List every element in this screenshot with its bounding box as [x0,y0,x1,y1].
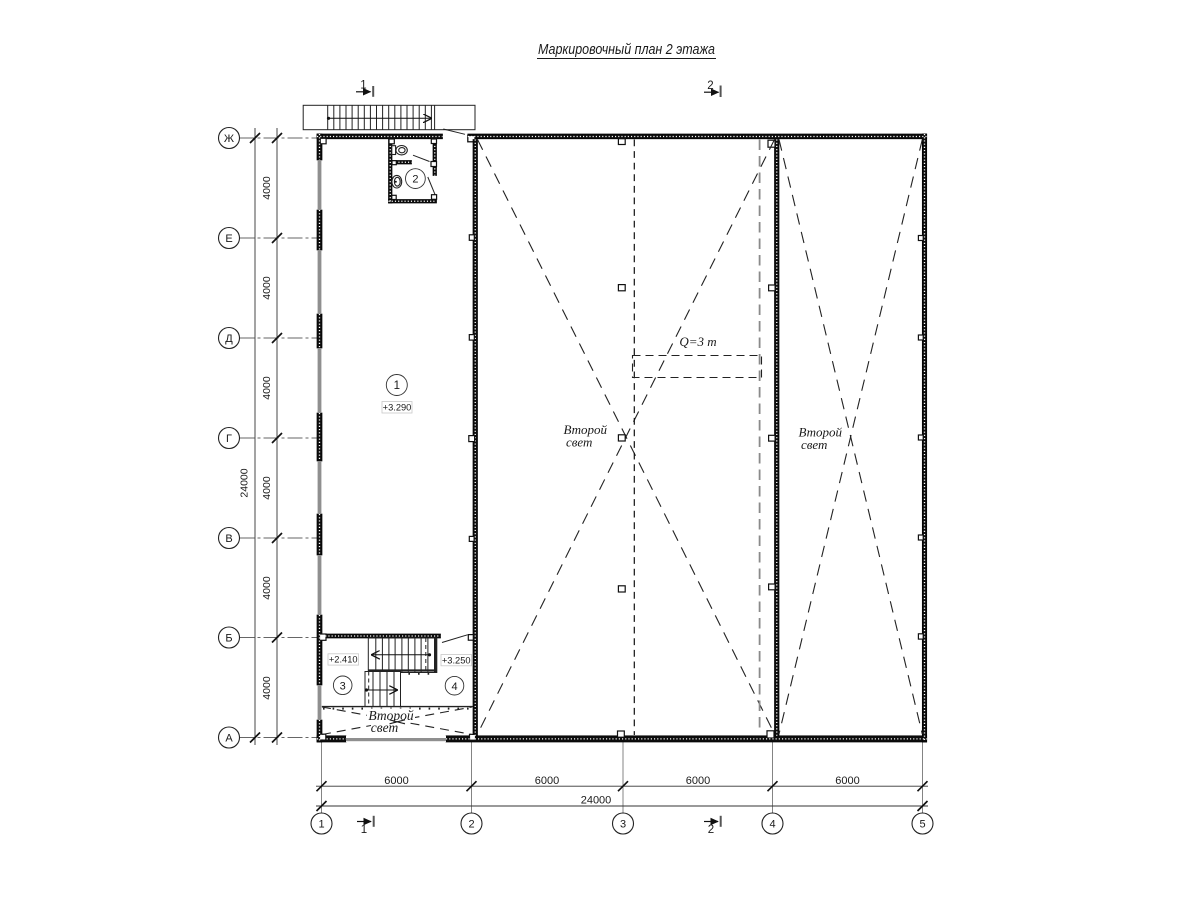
svg-text:2: 2 [707,80,713,92]
svg-text:Q=3 т: Q=3 т [679,334,716,349]
svg-text:3: 3 [620,819,626,831]
svg-text:Г: Г [226,433,232,445]
svg-text:4000: 4000 [261,376,273,400]
svg-text:4: 4 [769,819,775,831]
svg-text:4000: 4000 [261,276,273,300]
svg-text:В: В [225,533,232,545]
svg-text:1: 1 [394,380,400,392]
svg-text:свет: свет [566,435,592,450]
svg-text:Д: Д [225,333,233,345]
svg-text:1: 1 [318,819,324,831]
svg-text:4000: 4000 [261,676,273,700]
svg-text:+3.250: +3.250 [442,655,471,665]
svg-text:2: 2 [708,824,714,836]
svg-text:А: А [225,733,233,745]
svg-text:6000: 6000 [535,775,559,787]
svg-text:Ж: Ж [224,133,234,145]
svg-text:Маркировочный план 2 этажа: Маркировочный план 2 этажа [538,42,715,58]
svg-text:Б: Б [225,633,232,645]
svg-text:6000: 6000 [686,775,710,787]
svg-text:1: 1 [360,80,366,92]
svg-text:2: 2 [412,174,418,186]
svg-text:+2.410: +2.410 [329,655,358,665]
svg-text:Е: Е [225,233,232,245]
svg-text:4000: 4000 [261,476,273,500]
svg-text:24000: 24000 [581,795,612,807]
svg-text:1: 1 [361,824,367,836]
svg-text:4000: 4000 [261,176,273,200]
svg-text:6000: 6000 [384,775,408,787]
svg-text:6000: 6000 [835,775,859,787]
svg-text:5: 5 [919,819,925,831]
svg-text:4: 4 [451,681,457,693]
svg-text:24000: 24000 [239,468,251,497]
svg-text:2: 2 [468,819,474,831]
svg-text:свет: свет [801,437,827,452]
svg-text:4000: 4000 [261,576,273,600]
svg-text:3: 3 [340,680,346,692]
svg-text:+3.290: +3.290 [383,403,412,413]
